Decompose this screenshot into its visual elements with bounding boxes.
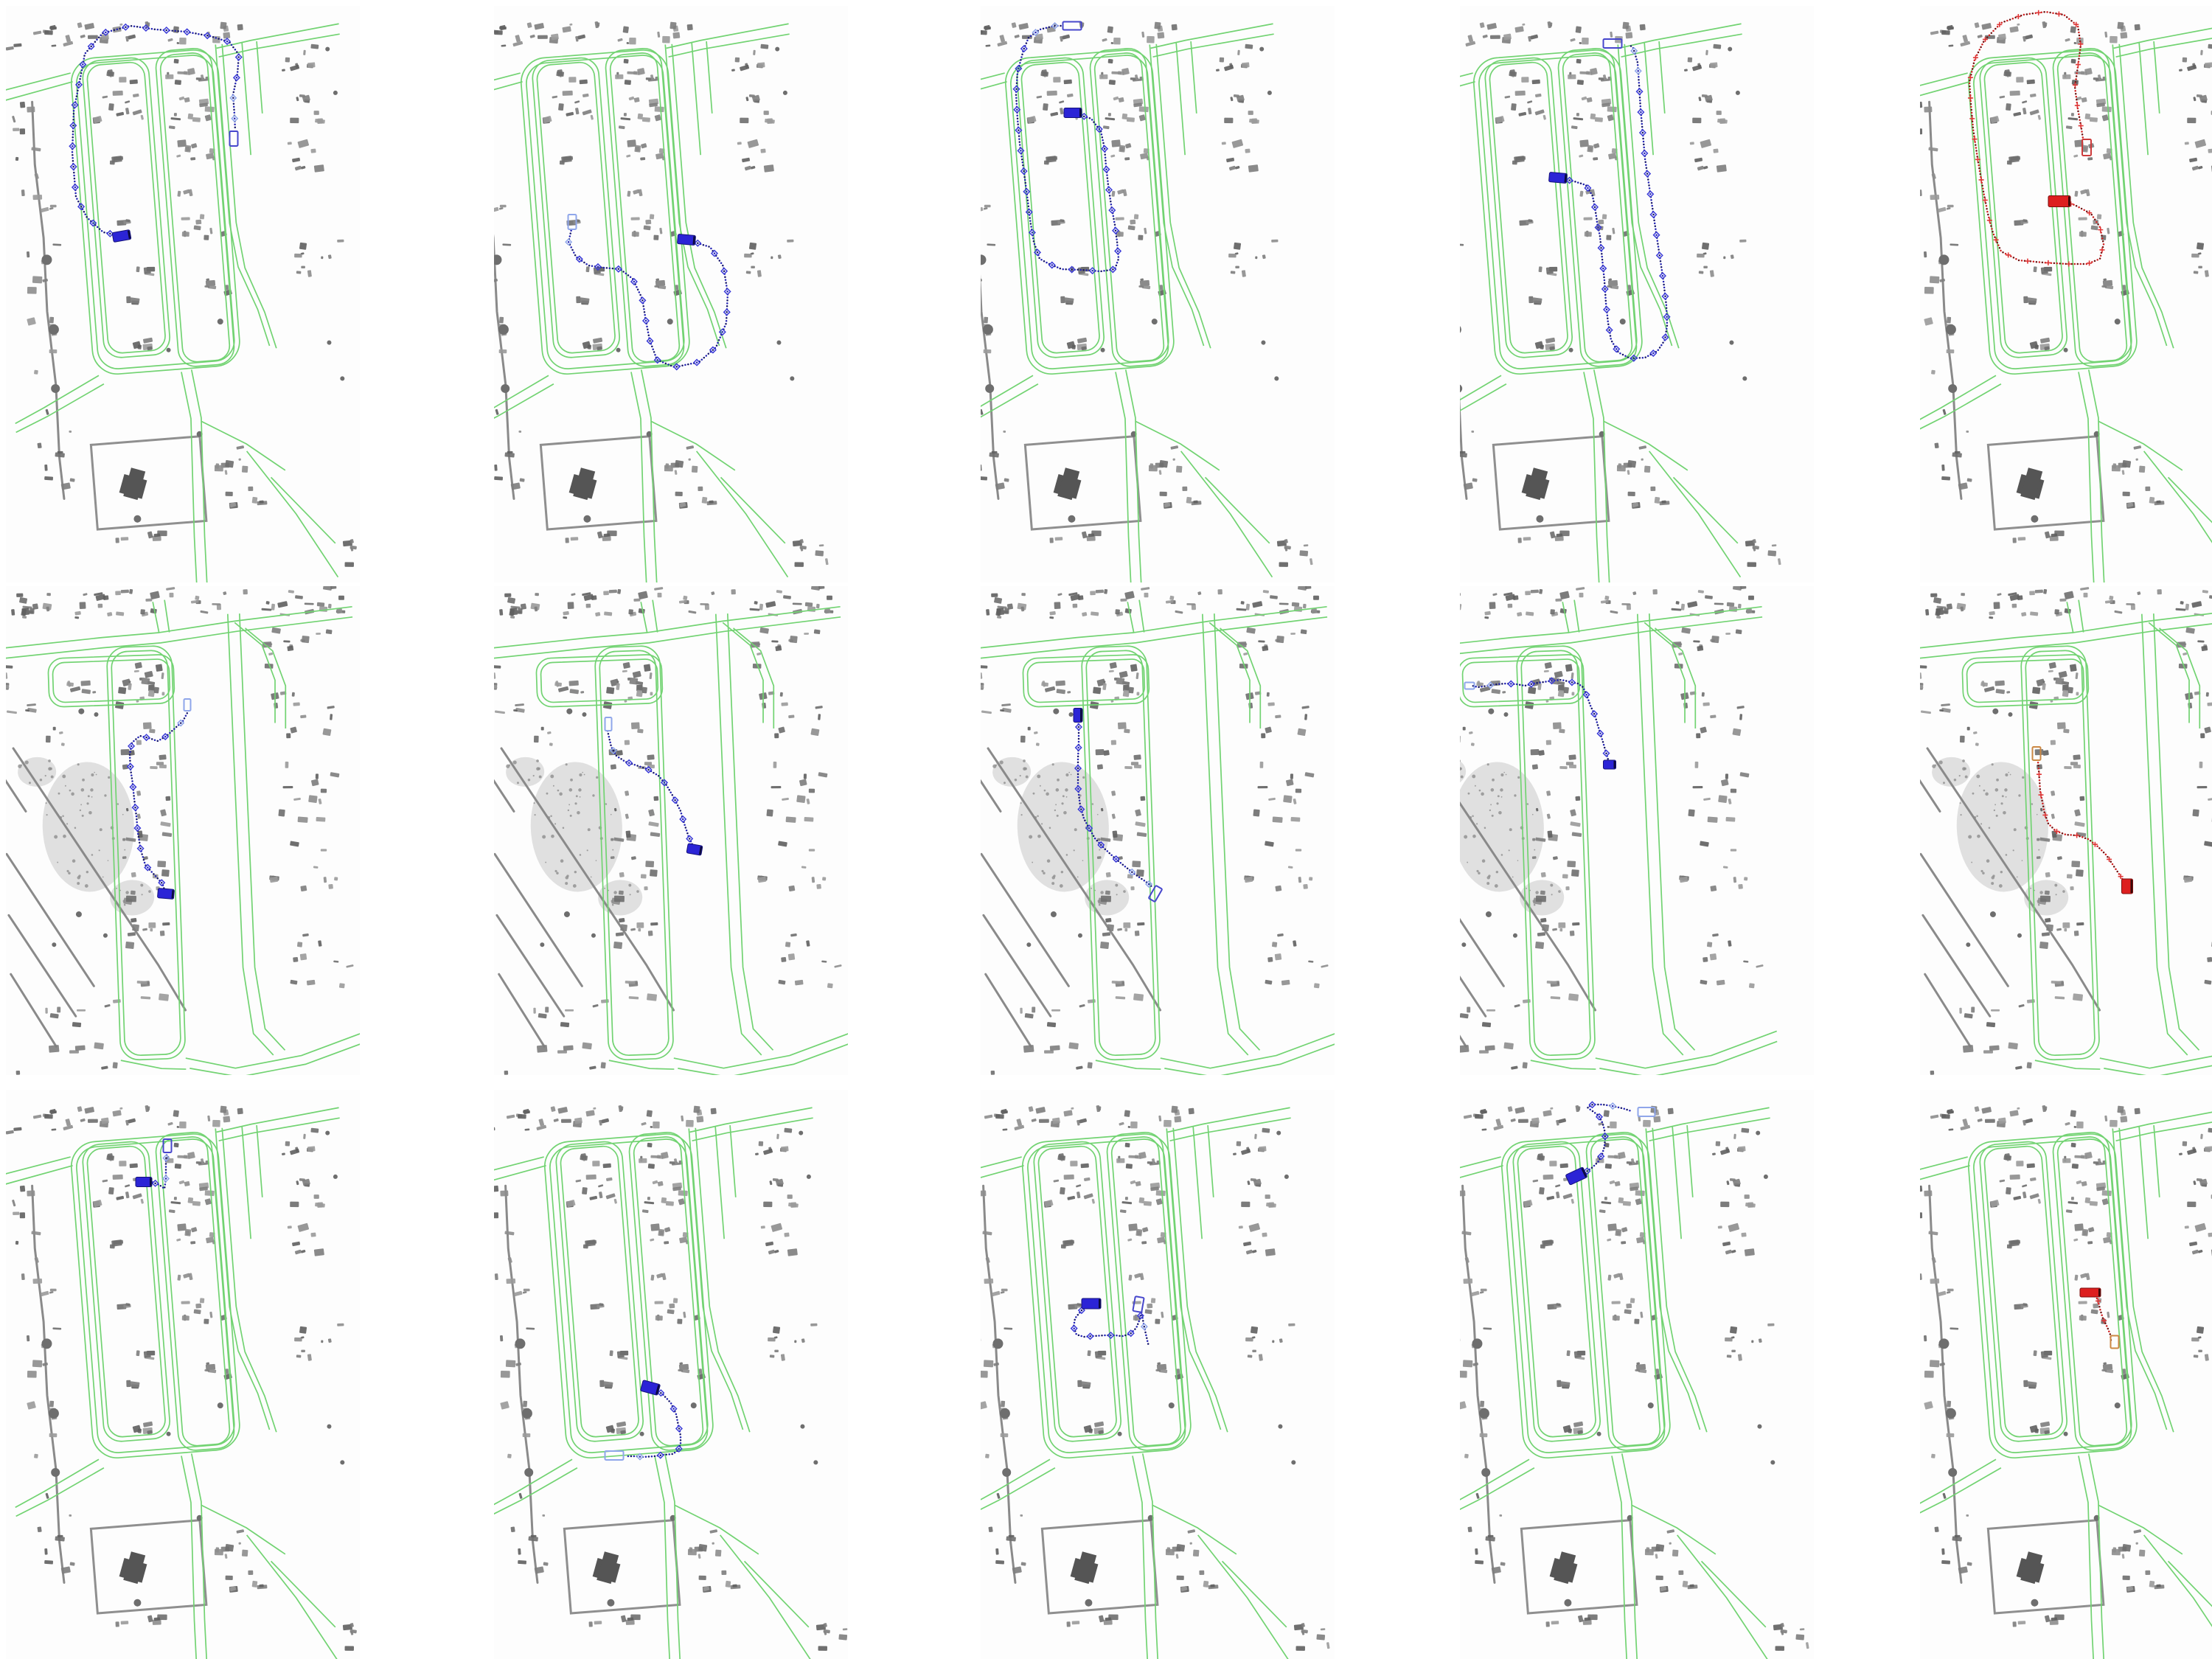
map-canvas-r2c5 bbox=[1920, 586, 2212, 1075]
map-canvas-r2c3 bbox=[981, 586, 1335, 1075]
map-panel-r3c4 bbox=[1460, 1090, 1814, 1659]
map-panel-r1c5 bbox=[1920, 6, 2212, 582]
map-panel-r3c5 bbox=[1920, 1090, 2212, 1659]
map-panel-r2c3 bbox=[981, 586, 1335, 1075]
map-canvas-r3c5 bbox=[1920, 1090, 2212, 1659]
map-panel-r2c2 bbox=[494, 586, 848, 1075]
vehicle-marker bbox=[2122, 879, 2133, 894]
vehicle-marker bbox=[157, 888, 174, 900]
vehicle-marker bbox=[136, 1178, 152, 1187]
map-panel-r1c1 bbox=[6, 6, 360, 582]
map-canvas-r1c3 bbox=[981, 6, 1335, 582]
vehicle-marker bbox=[686, 844, 703, 855]
map-canvas-r2c1 bbox=[6, 586, 360, 1075]
map-panel-r3c2 bbox=[494, 1090, 848, 1659]
map-panel-r3c1 bbox=[6, 1090, 360, 1659]
map-canvas-r3c4 bbox=[1460, 1090, 1814, 1659]
map-canvas-r2c4 bbox=[1460, 586, 1814, 1075]
vehicle-marker bbox=[1548, 172, 1567, 183]
vehicle-marker bbox=[1064, 108, 1082, 118]
map-panel-r2c5 bbox=[1920, 586, 2212, 1075]
map-panel-r2c1 bbox=[6, 586, 360, 1075]
vehicle-marker bbox=[677, 234, 695, 245]
map-canvas-r3c2 bbox=[494, 1090, 848, 1659]
vehicle-marker bbox=[1082, 1298, 1101, 1309]
map-panel-r1c4 bbox=[1460, 6, 1814, 582]
vehicle-marker bbox=[1604, 760, 1616, 769]
map-canvas-r2c2 bbox=[494, 586, 848, 1075]
vehicle-marker bbox=[2080, 1288, 2101, 1297]
trajectory-grid-figure bbox=[0, 0, 2212, 1659]
map-canvas-r3c3 bbox=[981, 1090, 1335, 1659]
map-panel-r3c3 bbox=[981, 1090, 1335, 1659]
map-panel-r1c2 bbox=[494, 6, 848, 582]
vehicle-marker bbox=[1074, 709, 1082, 723]
map-canvas-r1c5 bbox=[1920, 6, 2212, 582]
vehicle-marker bbox=[2048, 196, 2070, 207]
map-panel-r1c3 bbox=[981, 6, 1335, 582]
map-canvas-r1c2 bbox=[494, 6, 848, 582]
map-canvas-r1c4 bbox=[1460, 6, 1814, 582]
map-canvas-r1c1 bbox=[6, 6, 360, 582]
map-canvas-r3c1 bbox=[6, 1090, 360, 1659]
map-panel-r2c4 bbox=[1460, 586, 1814, 1075]
